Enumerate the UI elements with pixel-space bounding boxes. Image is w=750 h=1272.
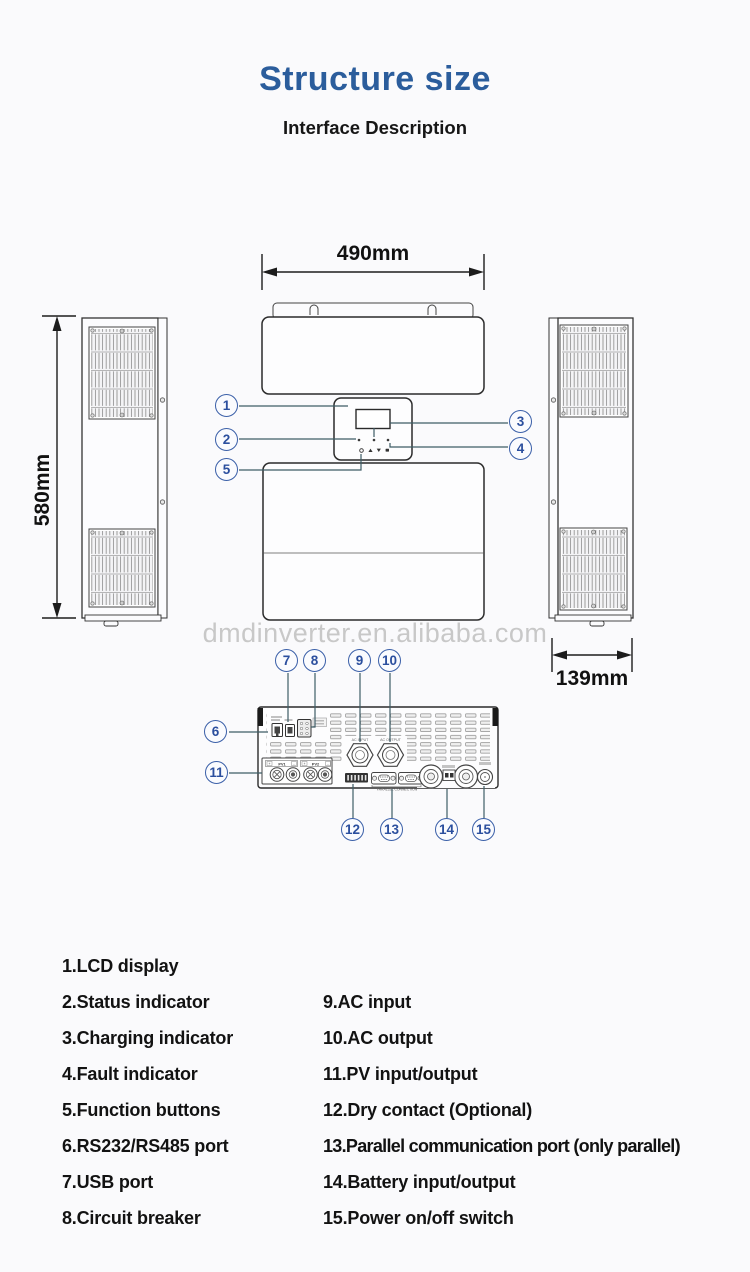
legend-item: 12.Dry contact (Optional) [323, 1092, 680, 1128]
vent-grille-bottom-right [560, 528, 627, 610]
page-subtitle: Interface Description [0, 117, 750, 139]
lcd-display [356, 410, 390, 429]
pv1-label: PV1 [278, 762, 285, 766]
callout-3-charging-indicator: 3 [509, 410, 532, 433]
legend-item: 14.Battery input/output [323, 1164, 680, 1200]
callout-10-ac-output: 10 [378, 649, 401, 672]
legend-item: 4.Fault indicator [62, 1056, 233, 1092]
legend-item: 2.Status indicator [62, 984, 233, 1020]
front-lower-body [263, 463, 484, 620]
dimension-depth-label: 139mm [532, 667, 652, 691]
legend-left-column: 1.LCD display 2.Status indicator 3.Charg… [62, 948, 233, 1236]
legend-item: 7.USB port [62, 1164, 233, 1200]
legend-item: 3.Charging indicator [62, 1020, 233, 1056]
right-side-view [549, 318, 633, 626]
side-screw [551, 398, 555, 402]
callout-12-dry-contact: 12 [341, 818, 364, 841]
callout-15-power-switch: 15 [472, 818, 495, 841]
legend-item: 15.Power on/off switch [323, 1200, 680, 1236]
left-side-view [82, 318, 167, 626]
legend-right-column: 9.AC input 10.AC output 11.PV input/outp… [323, 984, 680, 1236]
callout-4-fault-indicator: 4 [509, 437, 532, 460]
legend-item: 1.LCD display [62, 948, 233, 984]
callout-7-usb-port: 7 [275, 649, 298, 672]
dimension-width-label: 490mm [310, 242, 436, 266]
callout-14-battery: 14 [435, 818, 458, 841]
lcd-bezel [334, 398, 412, 460]
parallel-connection-label: PARALLEL CONNECTION [377, 788, 418, 792]
side-screw [551, 500, 555, 504]
end-cap-left [258, 708, 264, 726]
legend-item: 11.PV input/output [323, 1056, 680, 1092]
legend-item: 13.Parallel communication port (only par… [323, 1128, 680, 1164]
pv-terminals: + PV1 - + PV2 - [262, 758, 332, 784]
dry-contact-port [345, 773, 368, 783]
front-view [262, 303, 484, 620]
legend-item: 5.Function buttons [62, 1092, 233, 1128]
callout-6-rs232-port: 6 [204, 720, 227, 743]
callout-1-lcd-display: 1 [215, 394, 238, 417]
callout-5-function-buttons: 5 [215, 458, 238, 481]
vent-grille-bottom-left [89, 529, 155, 607]
callout-9-ac-input: 9 [348, 649, 371, 672]
legend-item: 9.AC input [323, 984, 680, 1020]
legend-item: 8.Circuit breaker [62, 1200, 233, 1236]
pv2-plus: + [303, 762, 305, 766]
vent-grille-top-right [560, 325, 628, 417]
legend-item: 6.RS232/RS485 port [62, 1128, 233, 1164]
bottom-view: AC INPUT AC OUTPUT + PV1 - + PV2 - [258, 707, 499, 792]
pv2-label: PV2 [312, 762, 319, 766]
side-screw [160, 500, 164, 504]
dimension-height-label: 580mm [31, 427, 59, 553]
end-cap-right [493, 708, 499, 726]
callout-11-pv-input-output: 11 [205, 761, 228, 784]
pv1-plus: + [268, 762, 270, 766]
ac-output-label: AC OUTPUT [380, 738, 402, 742]
side-screw [160, 398, 164, 402]
callout-13-parallel-port: 13 [380, 818, 403, 841]
legend-item: 10.AC output [323, 1020, 680, 1056]
callout-8-circuit-breaker: 8 [303, 649, 326, 672]
vent-grille-top-left [89, 327, 155, 419]
watermark: dmdinverter.en.alibaba.com [0, 618, 750, 649]
callout-2-status-indicator: 2 [215, 428, 238, 451]
page-title: Structure size [0, 60, 750, 99]
front-top-panel [262, 317, 484, 394]
